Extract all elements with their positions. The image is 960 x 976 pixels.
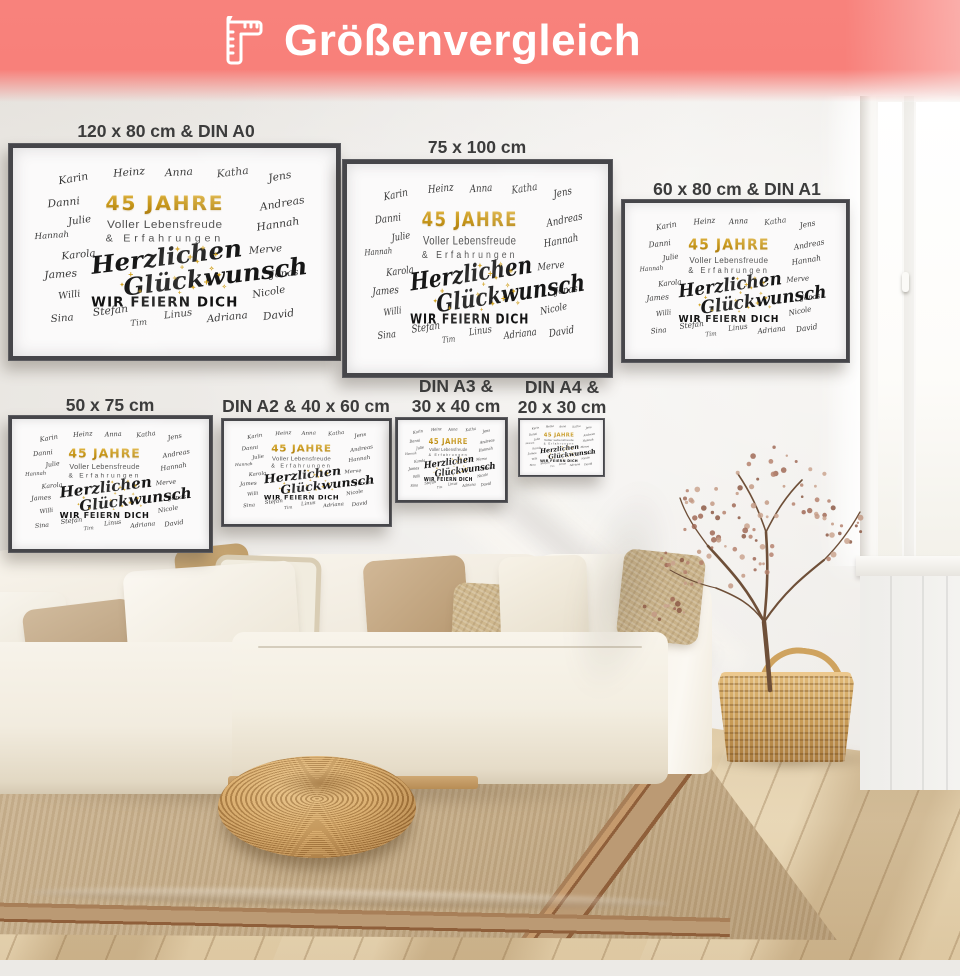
poster-artwork: KarinHeinzAnnaKathaJensDanniAndreasJulie… <box>520 420 603 475</box>
poster-subline: Voller Lebensfreude <box>69 463 139 471</box>
poster-headline: 45 JAHRE <box>688 236 769 253</box>
guest-name: James <box>528 451 537 455</box>
guest-name: David <box>262 306 295 323</box>
poster-footer-line: WIR FEIERN DICH <box>60 511 150 520</box>
guest-name: Sina <box>50 311 74 324</box>
poster-subline: & Erfahrungen <box>271 463 331 469</box>
poster-subline: & Erfahrungen <box>544 442 574 445</box>
guest-name: Jens <box>799 218 816 230</box>
guest-name: Linus <box>728 322 748 333</box>
banner-content: Größenvergleich <box>220 16 641 66</box>
guest-name: Adriana <box>323 501 344 509</box>
guest-name: Linus <box>163 307 193 322</box>
sparkle-icon: + <box>82 496 85 501</box>
poster-script-line: Herzlichen <box>540 443 580 455</box>
guest-name: Karola <box>41 481 62 490</box>
sparkle-icon: ✧ <box>222 284 227 290</box>
guest-name: Stefan <box>264 497 283 505</box>
sparkle-icon: ✧ <box>561 454 562 456</box>
guest-name: James <box>44 267 78 282</box>
sparkle-icon: ✦ <box>562 446 564 448</box>
sparkle-icon: ✦ <box>278 487 281 490</box>
poster-script-line: Herzlichen <box>423 453 474 471</box>
sparkle-icon: ✧ <box>467 472 469 474</box>
sparkle-icon: + <box>552 457 553 459</box>
guest-name: Heinz <box>546 424 554 428</box>
sparkle-icon: + <box>453 464 454 467</box>
poster-scaler: KarinHeinzAnnaKathaJensDanniAndreasJulie… <box>625 203 846 359</box>
sparkle-icon: ✧ <box>126 479 129 483</box>
guest-name: David <box>351 499 368 507</box>
poster-headline: 45 JAHRE <box>429 437 468 446</box>
sparkle-icon: + <box>448 304 452 311</box>
sparkle-icon: ✦ <box>567 449 568 451</box>
poster-frame: KarinHeinzAnnaKathaJensDanniAndreasJulie… <box>518 418 605 477</box>
guest-name: Merve <box>786 274 809 285</box>
poster-script-line: Glückwunsch <box>122 252 309 302</box>
sparkle-icon: + <box>213 251 218 259</box>
dried-plant <box>618 428 884 764</box>
poster-script-line: Glückwunsch <box>548 447 596 460</box>
sparkle-icon: + <box>178 289 182 295</box>
guest-name: Heinz <box>693 215 715 226</box>
guest-name: Jonas <box>554 283 578 297</box>
guest-name: Julie <box>416 445 424 451</box>
poster-scaler: KarinHeinzAnnaKathaJensDanniAndreasJulie… <box>224 421 389 524</box>
sparkle-icon: ✦ <box>216 272 221 278</box>
guest-name: Nicole <box>581 456 590 460</box>
guest-name: James <box>31 493 52 502</box>
poster-frame: KarinHeinzAnnaKathaJensDanniAndreasJulie… <box>221 418 392 527</box>
guest-name: James <box>240 480 257 487</box>
sparkle-icon: ✦ <box>433 299 437 305</box>
poster-script-line: Herzlichen <box>677 267 783 301</box>
sparkle-icon: ✦ <box>77 503 80 507</box>
size-label: 75 x 100 cm <box>428 138 526 158</box>
guest-name: Anna <box>559 424 566 428</box>
sparkle-icon: ✧ <box>109 499 112 503</box>
guest-name: Katha <box>764 215 787 227</box>
guest-name: Nicole <box>346 488 364 496</box>
guest-name: Andreas <box>479 437 494 445</box>
guest-name: Linus <box>104 518 122 527</box>
guest-name: Karola <box>386 264 414 279</box>
sparkle-icon: ✦ <box>465 468 467 470</box>
poster-artwork: KarinHeinzAnnaKathaJensDanniAndreasJulie… <box>224 421 389 524</box>
guest-name: Karola <box>61 247 96 262</box>
sparkle-icon: ✧ <box>200 245 205 251</box>
guest-name: Adriana <box>462 482 476 488</box>
sparkle-icon: + <box>571 447 572 449</box>
guest-name: Katha <box>465 426 476 432</box>
ruler-icon <box>220 16 268 66</box>
sparkle-icon: ✦ <box>572 453 573 455</box>
sparkle-icon: ✦ <box>511 288 515 294</box>
guest-name: Heinz <box>428 180 455 195</box>
sparkle-icon: ✧ <box>498 261 502 267</box>
page-title: Größenvergleich <box>284 19 641 63</box>
guest-name: Anna <box>469 181 492 195</box>
guest-name: Danni <box>529 432 538 436</box>
guest-name: Hannah <box>25 470 46 478</box>
poster-headline: 45 JAHRE <box>544 432 575 438</box>
guest-name: Stefan <box>92 302 129 319</box>
guest-name: Anna <box>104 430 122 439</box>
sparkle-icon: + <box>128 271 133 279</box>
sparkle-icon: + <box>326 472 329 476</box>
guest-name: David <box>584 462 592 466</box>
poster-script-line: Glückwunsch <box>78 484 192 515</box>
poster-script-line: Glückwunsch <box>699 281 827 318</box>
guest-name: Jonas <box>586 451 594 455</box>
guest-name: Tim <box>441 334 455 345</box>
sparkle-icon: ✧ <box>331 488 334 491</box>
sparkle-icon: ✧ <box>460 457 462 459</box>
guest-name: Adriana <box>570 463 581 467</box>
sparkle-icon: + <box>204 277 210 286</box>
guest-name: Karin <box>655 219 677 232</box>
sparkle-icon: + <box>569 454 570 456</box>
guest-name: David <box>480 481 491 487</box>
sparkle-icon: + <box>283 482 286 486</box>
header-banner: Größenvergleich <box>0 0 960 102</box>
sparkle-icon: ✧ <box>574 456 575 458</box>
guest-name: Sina <box>410 483 418 488</box>
guest-name: Stefan <box>411 319 441 336</box>
sparkle-icon: + <box>112 507 114 511</box>
guest-name: Willi <box>247 490 259 497</box>
guest-name: Karin <box>39 432 58 443</box>
sparkle-icon: + <box>738 309 741 314</box>
guest-name: Linus <box>301 500 316 507</box>
size-label: 50 x 75 cm <box>66 396 155 416</box>
guest-name: Julie <box>662 252 679 263</box>
sparkle-icon: + <box>744 281 748 288</box>
guest-name: James <box>646 292 669 303</box>
guest-name: Karola <box>248 470 266 477</box>
sparkle-icon: ✦ <box>111 480 115 484</box>
sparkle-icon: ✦ <box>749 286 752 290</box>
sparkle-icon: ✧ <box>759 291 763 296</box>
poster-script-line: Herzlichen <box>263 463 342 486</box>
guest-name: Hannah <box>582 438 593 443</box>
sparkle-icon: + <box>762 280 765 286</box>
sparkle-icon: + <box>309 478 311 482</box>
guest-name: Hannah <box>478 446 493 453</box>
sparkle-icon: ✦ <box>458 463 460 465</box>
sparkle-icon: ✦ <box>566 456 567 458</box>
guest-name: Sina <box>377 328 396 341</box>
guest-name: Hannah <box>791 253 821 267</box>
guest-name: Karin <box>247 432 263 441</box>
size-label: DIN A3 & 30 x 40 cm <box>412 377 501 416</box>
sparkle-icon: + <box>180 263 184 270</box>
sparkle-icon: ✦ <box>120 504 123 508</box>
poster-script-line: Herzlichen <box>59 473 153 502</box>
sparkle-icon: + <box>187 252 193 261</box>
sparkle-icon: ✧ <box>320 469 323 472</box>
sparkle-icon: + <box>456 460 458 464</box>
poster-script-line: Glückwunsch <box>434 460 496 479</box>
guest-name: Anna <box>729 216 749 226</box>
guest-name: Adriana <box>206 309 248 325</box>
guest-name: Merve <box>476 456 487 461</box>
guest-name: David <box>548 323 575 340</box>
guest-name: Linus <box>448 481 458 487</box>
poster-headline: 45 JAHRE <box>68 446 140 460</box>
sparkle-icon: + <box>453 474 454 476</box>
guest-name: Merve <box>344 468 361 475</box>
poster-frame: KarinHeinzAnnaKathaJensDanniAndreasJulie… <box>621 199 850 363</box>
poster-scaler: KarinHeinzAnnaKathaJensDanniAndreasJulie… <box>347 164 608 373</box>
poster-subline: & Erfahrungen <box>422 249 518 261</box>
guest-name: Julie <box>45 460 60 469</box>
guest-name: Willi <box>413 474 421 479</box>
poster-script-line: Glückwunsch <box>280 472 376 497</box>
guest-name: Stefan <box>679 318 704 330</box>
poster-subline: & Erfahrungen <box>106 233 224 245</box>
guest-name: Willi <box>39 507 53 515</box>
guest-name: Andreas <box>546 209 584 229</box>
guest-name: Tim <box>437 485 443 489</box>
guest-name: Merve <box>537 259 565 273</box>
guest-name: Nicole <box>251 284 286 301</box>
guest-name: Jens <box>482 428 490 434</box>
sparkle-icon: ✦ <box>491 301 495 307</box>
poster-scaler: KarinHeinzAnnaKathaJensDanniAndreasJulie… <box>398 420 505 500</box>
guest-name: Nicole <box>540 300 568 317</box>
poster-headline: 45 JAHRE <box>105 192 224 215</box>
sparkle-icon: + <box>128 500 131 506</box>
sparkle-icon: ✧ <box>139 504 142 508</box>
guest-name: Jonas <box>801 292 821 303</box>
sparkle-icon: ✧ <box>505 282 509 288</box>
guest-name: Katha <box>572 424 581 428</box>
guest-name: James <box>372 283 399 298</box>
guest-name: Danni <box>33 448 53 458</box>
guest-name: Adriana <box>503 326 537 342</box>
guest-name: Julie <box>391 229 411 244</box>
guest-name: Heinz <box>73 429 93 438</box>
guest-name: David <box>164 518 184 528</box>
guest-name: Sina <box>243 502 255 509</box>
sparkle-icon: ✦ <box>175 246 181 253</box>
guest-name: Heinz <box>113 164 146 179</box>
guest-name: Hannah <box>256 215 301 234</box>
guest-name: Willi <box>656 308 672 318</box>
poster-script-line: Herzlichen <box>89 234 243 280</box>
guest-name: Danni <box>648 238 671 250</box>
guest-name: Sina <box>35 521 50 529</box>
sparkle-icon: ✦ <box>764 296 768 301</box>
guest-name: Jens <box>585 425 591 429</box>
sparkle-icon: ✦ <box>698 304 701 308</box>
guest-name: Merve <box>156 478 177 487</box>
guest-name: Andreas <box>583 432 595 437</box>
poster-subline: & Erfahrungen <box>688 267 769 276</box>
guest-name: Jonas <box>355 480 370 487</box>
guest-name: Jens <box>267 168 292 184</box>
sparkle-icon: + <box>509 267 513 275</box>
guest-name: Julie <box>67 213 92 227</box>
sparkle-icon: + <box>313 473 316 478</box>
guest-name: David <box>795 322 818 334</box>
guest-name: Heinz <box>431 426 442 432</box>
poster-scaler: KarinHeinzAnnaKathaJensDanniAndreasJulie… <box>13 148 336 356</box>
sparkle-icon: + <box>710 308 713 313</box>
guest-name: Andreas <box>350 443 374 453</box>
sparkle-icon: ✧ <box>516 301 520 307</box>
guest-name: Jonas <box>169 493 187 502</box>
guest-name: Willi <box>383 305 402 319</box>
poster-subline: & Erfahrungen <box>68 472 140 479</box>
guest-name: Willi <box>531 457 537 461</box>
sparkle-icon: + <box>739 290 742 295</box>
sparkle-icon: ✦ <box>195 259 200 265</box>
guest-name: Hannah <box>405 451 417 456</box>
sparkle-icon: + <box>288 490 290 494</box>
sparkle-icon: + <box>501 294 506 303</box>
sparkle-icon: ✧ <box>132 492 135 496</box>
guest-name: Andreas <box>162 447 190 459</box>
guest-name: Danni <box>47 194 81 210</box>
sparkle-icon: ✦ <box>494 276 498 282</box>
guest-name: Karola <box>658 277 682 288</box>
guest-name: Andreas <box>793 237 825 252</box>
sparkle-icon: ✦ <box>547 455 548 457</box>
sparkle-icon: ✧ <box>768 305 771 309</box>
sparkle-icon: ✦ <box>315 488 318 491</box>
sparkle-icon: + <box>482 280 486 287</box>
guest-name: Jens <box>167 431 182 441</box>
sparkle-icon: ✧ <box>753 276 757 281</box>
sparkle-icon: + <box>439 474 440 477</box>
poster-footer-line: WIR FEIERN DICH <box>410 311 529 326</box>
guest-name: Tim <box>284 505 293 511</box>
guest-name: Hannah <box>160 461 187 473</box>
sparkle-icon: ✦ <box>747 305 751 310</box>
sparkle-icon: + <box>114 491 117 496</box>
poster-frame: KarinHeinzAnnaKathaJensDanniAndreasJulie… <box>8 143 341 361</box>
guest-name: Karin <box>57 169 89 186</box>
sparkle-icon: + <box>440 287 444 295</box>
poster-artwork: KarinHeinzAnnaKathaJensDanniAndreasJulie… <box>625 203 846 359</box>
poster-subline: Voller Lebensfreude <box>272 456 331 463</box>
sparkle-icon: ✧ <box>305 484 308 487</box>
guest-name: Julie <box>252 453 265 460</box>
guest-name: Katha <box>511 180 538 196</box>
sparkle-icon: + <box>562 457 563 459</box>
guest-name: Anna <box>164 165 193 179</box>
guest-name: Katha <box>328 429 345 437</box>
guest-name: Hannah <box>34 229 69 241</box>
guest-name: Merve <box>248 242 282 256</box>
poster-scaler: KarinHeinzAnnaKathaJensDanniAndreasJulie… <box>12 419 209 549</box>
guest-name: Danni <box>374 210 401 226</box>
sparkle-icon: ✧ <box>476 293 480 299</box>
poster-artwork: KarinHeinzAnnaKathaJensDanniAndreasJulie… <box>398 420 505 500</box>
sparkle-icon: ✧ <box>209 266 214 272</box>
guest-name: Jens <box>354 431 367 439</box>
guest-name: Adriana <box>757 324 786 336</box>
guest-name: Hannah <box>235 461 253 467</box>
sparkle-icon: ✦ <box>478 262 483 269</box>
guest-name: Anna <box>448 427 458 432</box>
size-label: 120 x 80 cm & DIN A0 <box>77 122 254 142</box>
poster-scaler: KarinHeinzAnnaKathaJensDanniAndreasJulie… <box>520 420 603 475</box>
sparkle-icon: ✧ <box>172 276 177 282</box>
sparkle-icon: ✧ <box>568 446 569 448</box>
sparkle-icon: ✦ <box>736 276 740 281</box>
guest-name: Danni <box>409 438 420 444</box>
sparkle-icon: ✧ <box>463 465 465 467</box>
poster-artwork: KarinHeinzAnnaKathaJensDanniAndreasJulie… <box>347 164 608 373</box>
guest-name: Linus <box>559 462 567 466</box>
poster-subline: & Erfahrungen <box>429 453 468 458</box>
guest-name: Hannah <box>348 454 371 463</box>
sparkle-icon: + <box>480 306 483 312</box>
guest-name: Jonas <box>483 465 493 470</box>
poster-subline: Voller Lebensfreude <box>429 447 467 452</box>
guest-name: Karin <box>531 426 539 431</box>
sparkle-icon: ✧ <box>324 479 327 482</box>
sparkle-icon: ✦ <box>433 472 435 474</box>
poster-headline: 45 JAHRE <box>422 208 518 231</box>
poster-footer-line: WIR FEIERN DICH <box>91 295 238 310</box>
sparkle-icon: ✦ <box>123 489 126 493</box>
guest-name: Danni <box>241 444 258 452</box>
sparkle-icon: + <box>118 484 121 490</box>
poster-footer-line: WIR FEIERN DICH <box>424 476 473 482</box>
sparkle-icon: + <box>134 483 137 488</box>
poster-script-line: Glückwunsch <box>435 268 586 318</box>
guest-name: Stefan <box>424 479 436 485</box>
guest-name: Tim <box>550 465 554 468</box>
sparkle-icon: + <box>308 491 310 494</box>
sparkle-icon: ✦ <box>457 472 459 474</box>
guest-name: Willi <box>58 288 81 301</box>
poster-subline: Voller Lebensfreude <box>423 234 516 248</box>
guest-name: Hannah <box>364 245 392 257</box>
sparkle-icon: + <box>138 287 142 294</box>
guest-name: Jens <box>552 184 572 200</box>
guest-name: Karin <box>413 428 424 435</box>
poster-script-line: Herzlichen <box>409 250 534 296</box>
sparkle-icon: + <box>550 452 551 454</box>
sparkle-icon: + <box>88 506 91 511</box>
guest-name: Hannah <box>525 441 534 444</box>
guest-name: Katha <box>216 164 249 180</box>
foliage <box>643 446 864 621</box>
poster-frame: KarinHeinzAnnaKathaJensDanniAndreasJulie… <box>395 417 508 503</box>
sparkle-icon: ✧ <box>451 469 453 471</box>
guest-name: Karin <box>383 186 409 203</box>
guest-name: Linus <box>468 323 492 338</box>
guest-name: Andreas <box>259 193 306 213</box>
sparkle-icon: + <box>704 295 707 301</box>
guest-name: Hannah <box>640 264 664 273</box>
poster-subline: Voller Lebensfreude <box>689 255 768 265</box>
guest-name: Jonas <box>270 266 299 280</box>
guest-name: Stefan <box>60 515 82 525</box>
poster-subline: Voller Lebensfreude <box>107 218 223 232</box>
poster-headline: 45 JAHRE <box>271 443 332 454</box>
sparkle-icon: + <box>563 451 564 453</box>
poster-subline: Voller Lebensfreude <box>544 438 574 442</box>
poster-artwork: KarinHeinzAnnaKathaJensDanniAndreasJulie… <box>12 419 209 549</box>
guest-name: James <box>408 466 419 472</box>
guest-name: Sina <box>650 326 666 336</box>
